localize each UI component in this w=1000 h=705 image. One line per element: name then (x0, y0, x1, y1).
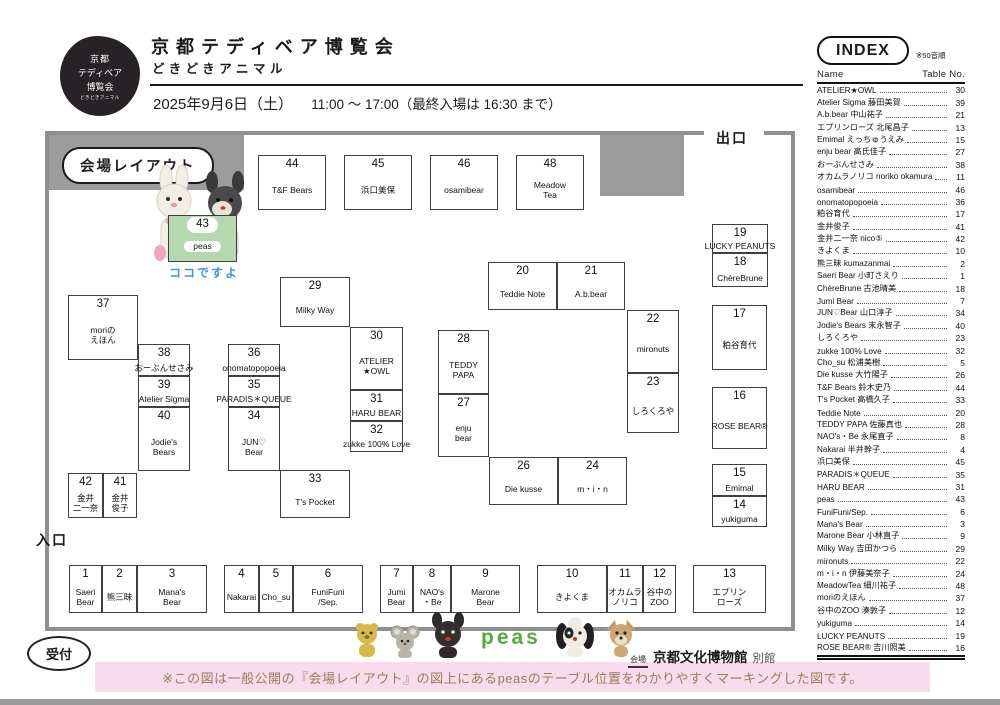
table-22: 22mironuts (627, 310, 679, 373)
table-45: 45浜口美保 (344, 155, 412, 210)
table-16: 16ROSE BEAR® (712, 387, 767, 449)
table-1: 1Saeri Bear (69, 565, 102, 613)
table-3: 3Mana's Bear (137, 565, 207, 613)
table-5: 5Cho_su (259, 565, 293, 613)
venue-info: 会場 京都文化博物館 別館 (628, 646, 776, 668)
poodle-plush-icon (554, 614, 596, 658)
footer-note: ※この図は一般公開の『会場レイアウト』の図上にあるpeasのテーブル位置をわかり… (95, 662, 930, 692)
table-19: 19LUCKY PEANUTS (712, 224, 768, 253)
table-4: 4Nakarai (224, 565, 259, 613)
page-bottom-edge (0, 699, 1000, 705)
wall-block (600, 135, 684, 196)
here-marker-text: ココですよ (160, 264, 248, 281)
table-29: 29Milky Way (280, 277, 350, 327)
table-15: 15Emimal (712, 464, 767, 496)
table-17: 17粕谷育代 (712, 305, 767, 370)
flyer-page: 京都 テディベア 博覧会 どきどきアニマル 京都テディベア博覧会 どきどきアニマ… (0, 0, 1000, 705)
gray-mouse-plush-icon (389, 624, 421, 658)
table-8: 8NAO's ・Be (413, 565, 451, 613)
table-42: 42金井 二一奈 (68, 473, 103, 518)
venue-name: 京都文化博物館 (653, 646, 748, 666)
table-35: 35PARADIS＊QUEUE (228, 376, 280, 407)
exit-label: 出口 (716, 128, 748, 148)
table-32: 32zukke 100% Love (350, 421, 403, 452)
table-14: 14yukiguma (712, 496, 767, 527)
table-7: 7Jumi Bear (380, 565, 413, 613)
peas-brand-text: peas (481, 626, 541, 650)
table-46: 46osamibear (430, 155, 498, 210)
table-6: 6FuniFuni /Sep. (293, 565, 363, 613)
table-41: 41金井 俊子 (103, 473, 137, 518)
table-24: 24m・i・n (558, 457, 627, 505)
table-33: 33T's Pocket (280, 470, 350, 518)
footer-mascots: peas (352, 612, 639, 658)
table-43: 43peas (168, 215, 237, 262)
entrance-label: 入口 (36, 530, 68, 550)
table-48: 48Meadow Tea (516, 155, 584, 210)
table-37: 37moriの えほん (68, 295, 138, 360)
table-21: 21A.b.bear (557, 262, 625, 310)
table-13: 13エプリン ローズ (693, 565, 766, 613)
table-31: 31HARU BEAR (350, 390, 403, 421)
table-11: 11オカムラ ノリコ (607, 565, 643, 613)
table-36: 36onomatopopoeia (228, 344, 280, 376)
table-2: 2熊三昧 (102, 565, 137, 613)
table-26: 26Die kusse (489, 457, 558, 505)
table-40: 40Jodie's Bears (138, 407, 190, 471)
table-44: 44T&F Bears (258, 155, 326, 210)
table-27: 27enju bear (438, 394, 489, 457)
table-20: 20Teddie Note (488, 262, 557, 310)
table-34: 34JUN♡ Bear (228, 407, 280, 471)
yellow-bear-plush-icon (352, 620, 382, 658)
table-39: 39Atelier Sigma (138, 376, 190, 407)
venue-suffix: 別館 (753, 650, 776, 666)
table-12: 12谷中の ZOO (643, 565, 676, 613)
table-18: 18ChèreBrune (712, 253, 768, 287)
table-30: 30ATELIER ★OWL (350, 327, 403, 390)
venue-map: 出口 会場レイアウト 入口 受付 ココですよ (0, 0, 1000, 705)
table-38: 38おーぶんせさみ (138, 344, 190, 376)
table-28: 28TEDDY PAPA (438, 330, 489, 394)
table-23: 23しろくろや (627, 373, 679, 433)
black-bulldog-plush-icon (428, 612, 468, 658)
reception-badge: 受付 (27, 636, 91, 671)
table-9: 9Marone Bear (451, 565, 520, 613)
venue-tag: 会場 (628, 654, 648, 668)
table-10: 10きよくま (537, 565, 607, 613)
